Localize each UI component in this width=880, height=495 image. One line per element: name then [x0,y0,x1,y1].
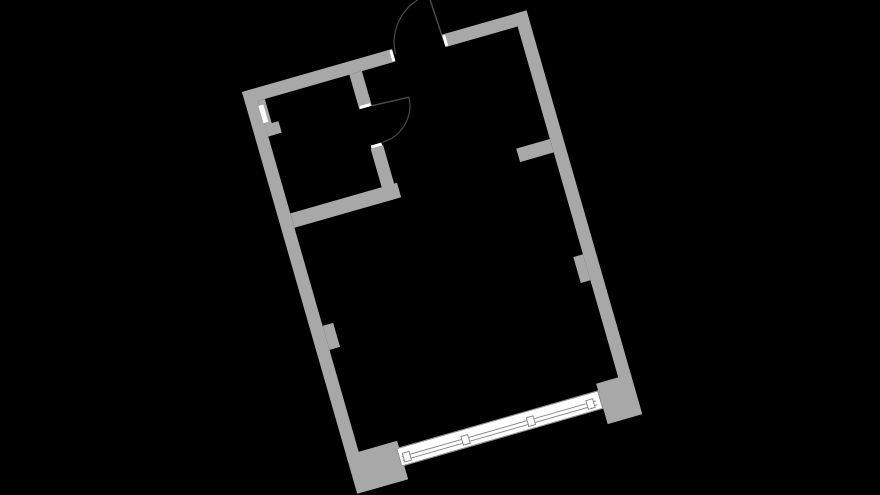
right-stub-wall [516,139,554,162]
entry-door [382,0,443,54]
floor-plan-canvas [0,0,880,495]
window-glazing-line [402,400,596,457]
left-wall [242,88,361,462]
left-wall-step [265,121,282,136]
door-swing-layer [155,0,732,495]
room-door-swing-arc [372,97,418,142]
top-wall-left [242,49,396,104]
bottom-right-corner-block [596,374,642,424]
right-wall [514,10,632,380]
room-door [372,95,419,142]
entry-door-swing-arc [382,0,441,54]
floor-plan [242,10,645,495]
window-band [396,390,603,466]
room-door-leaf [372,95,409,107]
window-glazing-line [403,404,597,461]
small-room-wall-horizontal [290,183,401,228]
